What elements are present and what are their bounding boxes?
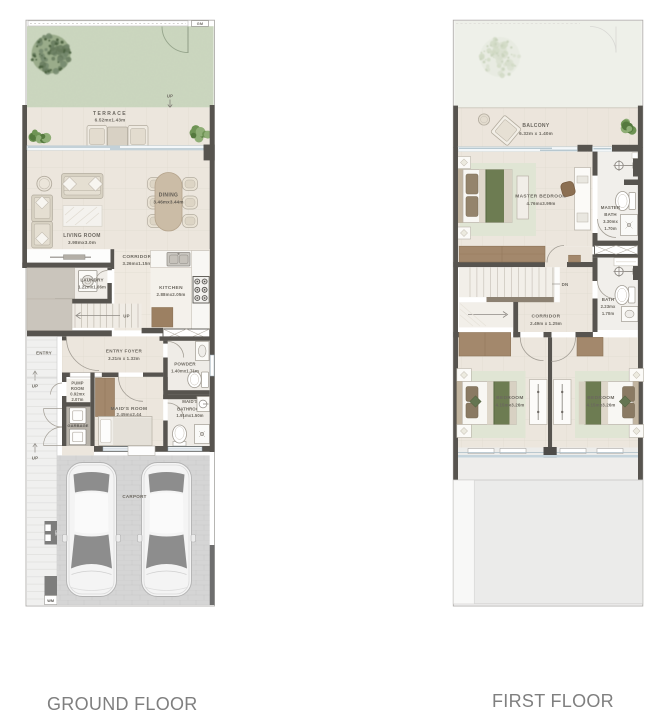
svg-text:1.91mx1.50m: 1.91mx1.50m <box>176 413 203 418</box>
svg-text:3.26mx1.15m: 3.26mx1.15m <box>123 261 152 266</box>
svg-text:FIRST FLOOR: FIRST FLOOR <box>492 691 614 711</box>
svg-text:GM: GM <box>197 22 204 26</box>
svg-text:3.30mx: 3.30mx <box>603 219 618 224</box>
svg-text:BEDROOM: BEDROOM <box>496 395 524 401</box>
svg-text:ENTRY FOYER: ENTRY FOYER <box>106 349 143 354</box>
svg-text:BATH: BATH <box>604 212 616 217</box>
svg-text:3.21m x 1.32m: 3.21m x 1.32m <box>108 356 140 361</box>
svg-text:CORRIDOR: CORRIDOR <box>123 254 152 260</box>
svg-text:KITCHEN: KITCHEN <box>159 285 183 291</box>
svg-text:LIVING ROOM: LIVING ROOM <box>63 233 100 239</box>
svg-text:1.70m: 1.70m <box>602 311 615 316</box>
svg-text:UP: UP <box>32 384 39 389</box>
svg-text:2.23mx: 2.23mx <box>601 304 616 309</box>
svg-text:0.92mx: 0.92mx <box>70 391 85 396</box>
svg-text:3.46mx3.44m: 3.46mx3.44m <box>153 200 183 205</box>
svg-text:6.32m x 1.40m: 6.32m x 1.40m <box>519 131 553 136</box>
svg-text:POWDER: POWDER <box>174 362 196 367</box>
svg-text:UP: UP <box>123 313 130 318</box>
svg-text:MAID'S ROOM: MAID'S ROOM <box>111 406 148 412</box>
svg-text:1.22mx1.06m: 1.22mx1.06m <box>78 285 106 290</box>
svg-text:ENTRY: ENTRY <box>36 351 52 356</box>
svg-text:DN: DN <box>562 282 569 287</box>
svg-text:2.88mx2.05m: 2.88mx2.05m <box>157 292 186 297</box>
svg-text:UP: UP <box>167 94 173 99</box>
svg-text:ROOM: ROOM <box>71 386 85 391</box>
svg-text:BATH: BATH <box>602 297 614 302</box>
svg-text:CORRIDOR: CORRIDOR <box>532 314 561 320</box>
svg-text:MAID'S: MAID'S <box>182 399 198 404</box>
svg-text:3.98mx3.0m: 3.98mx3.0m <box>68 240 96 245</box>
svg-text:BEDROOM: BEDROOM <box>587 395 615 401</box>
svg-text:1.70m: 1.70m <box>604 226 617 231</box>
svg-text:CARPORT: CARPORT <box>122 494 146 499</box>
svg-text:TERRACE: TERRACE <box>93 111 127 117</box>
svg-text:BALCONY: BALCONY <box>522 123 549 129</box>
svg-text:1.40mx1.71m: 1.40mx1.71m <box>171 369 199 374</box>
svg-text:6.52mx1.43m: 6.52mx1.43m <box>95 118 126 123</box>
svg-text:GARBAGE: GARBAGE <box>67 423 88 428</box>
svg-text:LAUNDRY: LAUNDRY <box>80 278 103 283</box>
svg-text:4.15mx3.26m: 4.15mx3.26m <box>496 403 525 408</box>
svg-text:2.07m: 2.07m <box>71 397 83 402</box>
svg-text:2.45mx2.44: 2.45mx2.44 <box>117 412 142 417</box>
svg-text:MASTER: MASTER <box>601 205 621 210</box>
svg-text:2.49m x 1.25m: 2.49m x 1.25m <box>530 321 562 326</box>
svg-text:4.76mx3.99m: 4.76mx3.99m <box>527 201 556 206</box>
svg-text:WM: WM <box>47 599 54 603</box>
svg-text:MASTER BEDROOM: MASTER BEDROOM <box>515 194 567 200</box>
svg-text:DINING: DINING <box>159 193 179 199</box>
svg-text:4.15mx3.26m: 4.15mx3.26m <box>587 403 616 408</box>
svg-text:UP: UP <box>32 456 39 461</box>
svg-text:GROUND FLOOR: GROUND FLOOR <box>47 694 198 714</box>
svg-text:PUMP: PUMP <box>71 380 83 385</box>
